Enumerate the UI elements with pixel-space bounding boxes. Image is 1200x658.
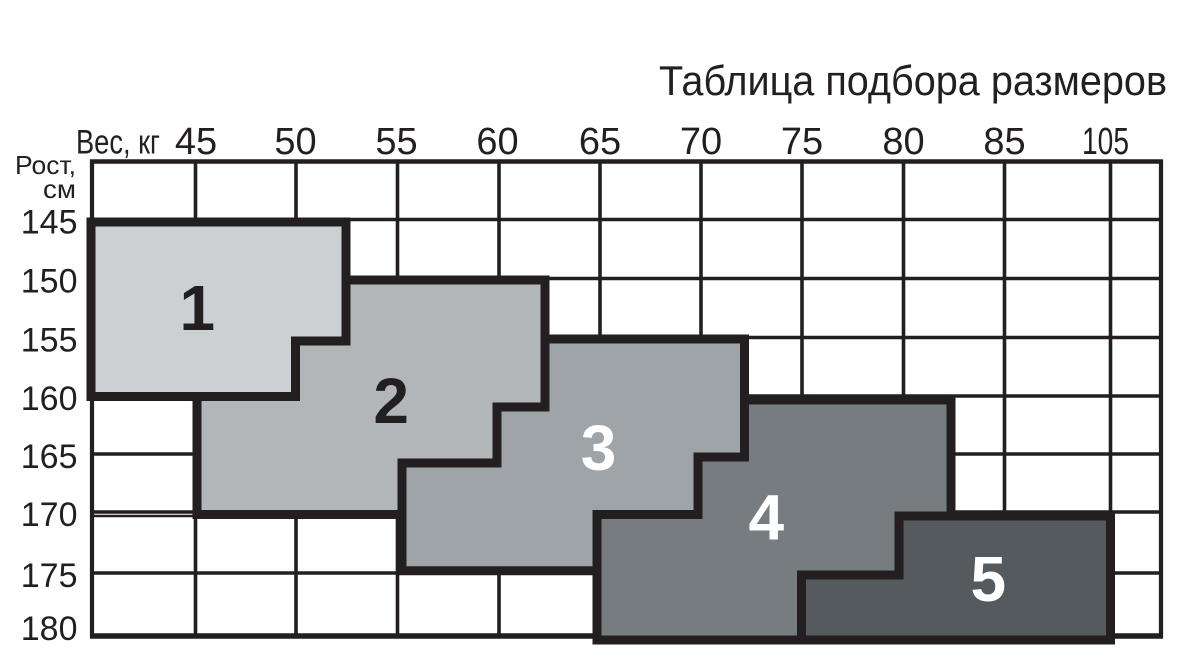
svg-text:65: 65: [579, 121, 621, 163]
svg-text:160: 160: [21, 380, 78, 418]
svg-text:50: 50: [274, 121, 316, 163]
svg-text:75: 75: [781, 121, 823, 163]
svg-text:105: 105: [1082, 121, 1129, 163]
svg-text:145: 145: [21, 204, 78, 242]
svg-text:5: 5: [971, 543, 1007, 615]
svg-text:180: 180: [21, 610, 78, 648]
svg-text:165: 165: [21, 438, 78, 476]
svg-text:2: 2: [373, 365, 409, 437]
svg-text:80: 80: [882, 121, 924, 163]
svg-text:155: 155: [21, 322, 78, 360]
svg-text:60: 60: [476, 121, 518, 163]
svg-text:85: 85: [983, 121, 1025, 163]
svg-text:4: 4: [749, 482, 785, 554]
svg-text:Вес, кг: Вес, кг: [76, 124, 160, 162]
svg-text:Таблица подбора размеров: Таблица подбора размеров: [659, 57, 1167, 104]
svg-text:150: 150: [21, 263, 78, 301]
svg-text:1: 1: [180, 272, 216, 344]
svg-text:175: 175: [21, 557, 78, 595]
svg-text:55: 55: [375, 121, 417, 163]
svg-text:45: 45: [175, 121, 217, 163]
svg-text:170: 170: [21, 496, 78, 534]
svg-text:70: 70: [680, 121, 722, 163]
svg-text:см: см: [43, 174, 76, 204]
svg-text:3: 3: [581, 412, 617, 484]
